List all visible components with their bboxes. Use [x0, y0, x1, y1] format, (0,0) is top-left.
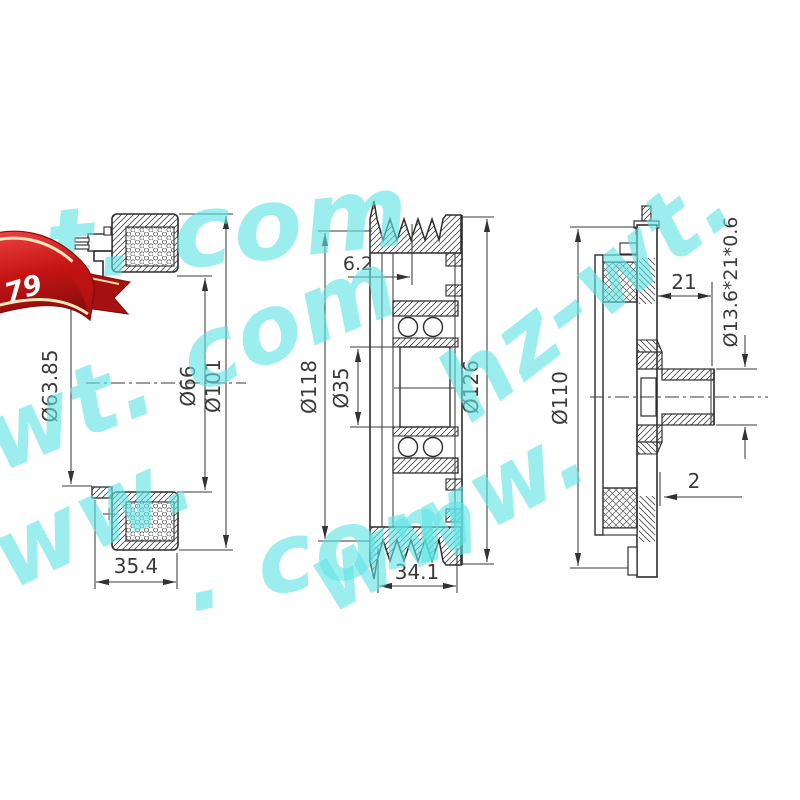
- watermark-fragment: hz-wt.: [416, 145, 755, 443]
- hub-sleeve-wall-top: [637, 352, 662, 369]
- pulley-ring-tab: [446, 285, 462, 296]
- dim-label-pulley-bore: Ø35: [329, 367, 353, 408]
- hub-disc-cap-bottom: [603, 528, 637, 535]
- screenshot-canvas: Ø63.85 Ø66 Ø101 35.4: [0, 0, 800, 800]
- technical-drawing-canvas: Ø63.85 Ø66 Ø101 35.4: [0, 0, 800, 800]
- hub-flare-top: [637, 340, 662, 352]
- dim-label-gap: 2: [688, 469, 701, 493]
- pulley-ring-tab: [446, 253, 462, 266]
- hub-sleeve-wall-bottom: [637, 425, 662, 442]
- bearing-ball: [424, 318, 443, 337]
- hub-flare-bottom: [637, 442, 662, 454]
- shaft-wall-top: [662, 369, 714, 380]
- hub-spine-hatch-bottom: [639, 496, 655, 542]
- bearing-ball: [399, 438, 418, 457]
- shaft-wall-bottom: [662, 414, 714, 425]
- bearing-inner-race-bottom: [393, 427, 458, 436]
- hub-disc-bottom-lip: [628, 547, 637, 575]
- bearing-ball: [424, 438, 443, 457]
